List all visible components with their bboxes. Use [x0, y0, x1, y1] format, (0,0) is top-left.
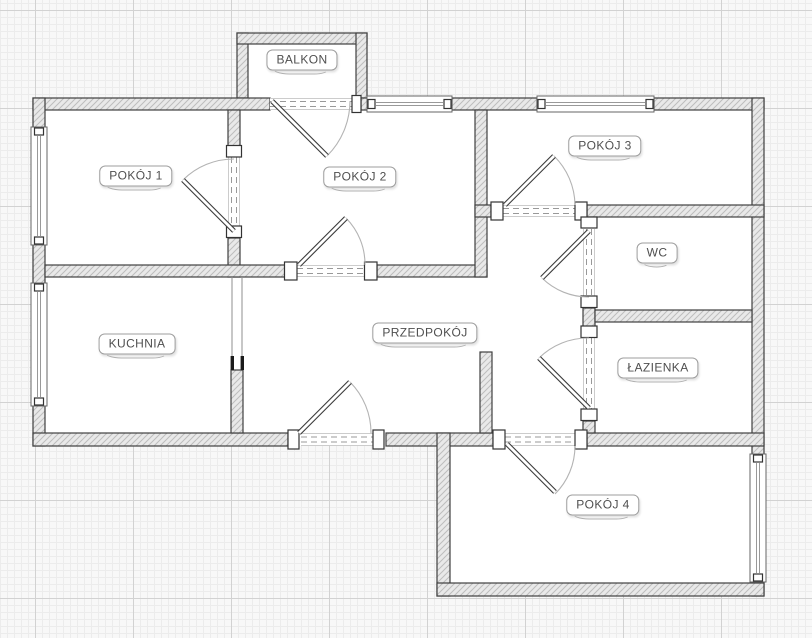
wall-rooms-hall: [377, 265, 487, 277]
opening-entrance: [301, 433, 373, 446]
wall-pokoj3-bottom: [475, 205, 491, 217]
room-label-balkon: BALKON: [266, 50, 337, 71]
room-label-pokoj-1: POKÓJ 1: [99, 166, 172, 187]
floorplan-page: { "floor_plan": { "type": "apartment-flo…: [0, 0, 812, 638]
wall-balcony-right: [356, 33, 367, 98]
room-label-pokoj-3: POKÓJ 3: [568, 136, 641, 157]
wall-rooms-hall: [45, 265, 285, 277]
wall-top: [654, 98, 764, 110]
wall-pokoj1-pokoj2: [228, 110, 240, 146]
room-label-wc: WC: [637, 243, 678, 264]
wall-hall-stub: [480, 352, 492, 433]
wall-pokoj4-bottom: [437, 583, 764, 596]
wall-top: [452, 98, 537, 110]
room-label-pokoj-2: POKÓJ 2: [323, 167, 396, 188]
wall-wc-lazienka: [595, 310, 752, 322]
window-pokoj-1: [31, 127, 47, 245]
room-label-przedpokoj: PRZEDPOKÓJ: [372, 323, 477, 344]
floorplan-drawing: [0, 0, 812, 638]
wall-corridor-right: [583, 308, 595, 327]
wall-kuchnia-hall: [231, 370, 243, 433]
window-pokoj-4: [750, 454, 766, 582]
wall-pokoj2-corridor: [475, 110, 487, 277]
room-label-kuchnia: KUCHNIA: [99, 334, 176, 355]
room-label-pokoj-4: POKÓJ 4: [566, 495, 639, 516]
opening-pokoj-2: [297, 265, 365, 277]
window-kuchnia: [31, 283, 47, 406]
wall-balcony-top: [237, 33, 367, 44]
wall-pokoj4-left: [437, 433, 450, 596]
wall-left: [33, 243, 45, 285]
wall-top: [33, 98, 270, 110]
wall-bottom-main: [33, 433, 288, 446]
window-pokoj-2: [367, 96, 452, 112]
wall-bottom-main: [587, 433, 764, 446]
opening-lazienka: [583, 338, 595, 410]
opening-pokoj-1: [228, 157, 240, 227]
wall-pokoj3-bottom: [587, 205, 764, 217]
opening-wc: [583, 229, 595, 297]
window-pokoj-3: [537, 96, 654, 112]
opening-pokoj-4: [505, 433, 575, 446]
room-label-lazienka: ŁAZIENKA: [617, 358, 698, 379]
opening-pokoj-3: [503, 205, 575, 217]
wall-right: [752, 98, 764, 456]
wall-left: [33, 98, 45, 129]
